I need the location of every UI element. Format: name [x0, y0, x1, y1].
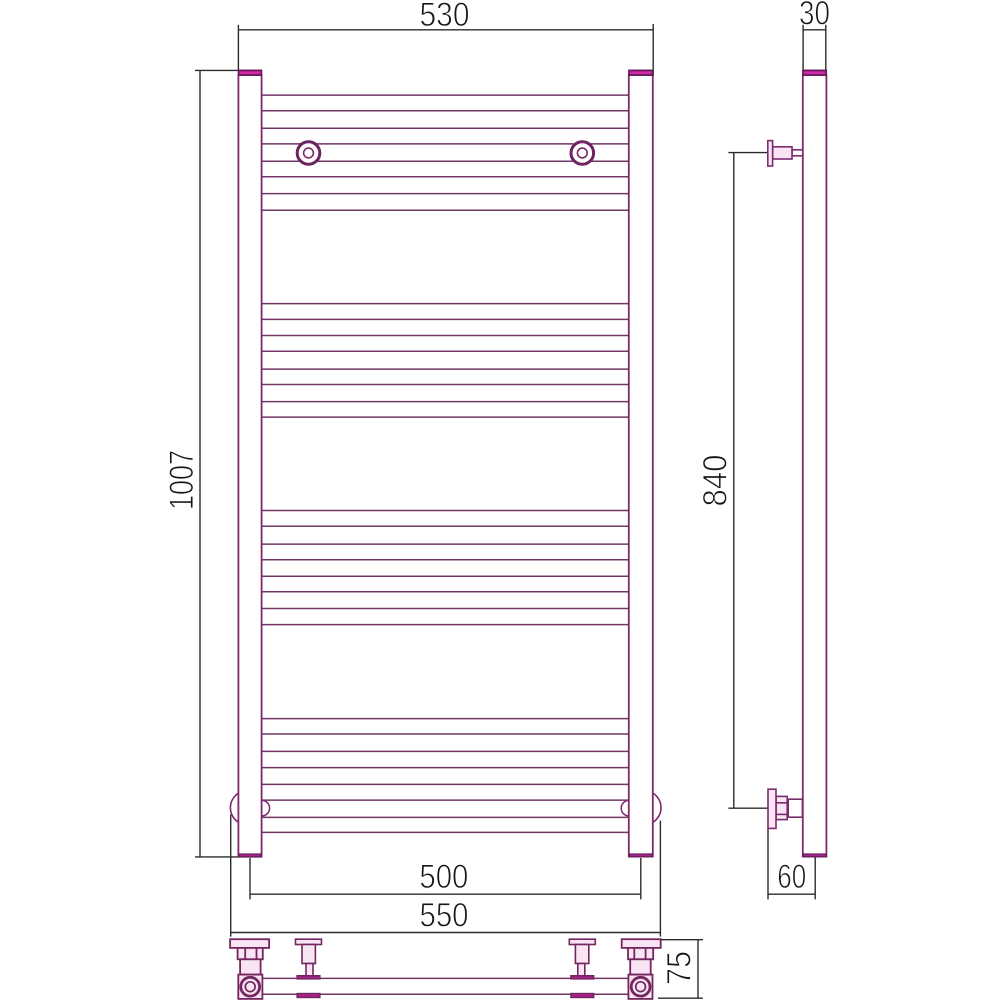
svg-text:500: 500 [419, 858, 468, 896]
svg-text:1007: 1007 [163, 450, 201, 510]
svg-text:30: 30 [799, 0, 830, 32]
svg-text:840: 840 [696, 455, 734, 507]
svg-text:550: 550 [420, 896, 469, 934]
svg-text:530: 530 [420, 0, 470, 34]
svg-text:60: 60 [777, 858, 806, 896]
svg-text:75: 75 [660, 951, 698, 985]
